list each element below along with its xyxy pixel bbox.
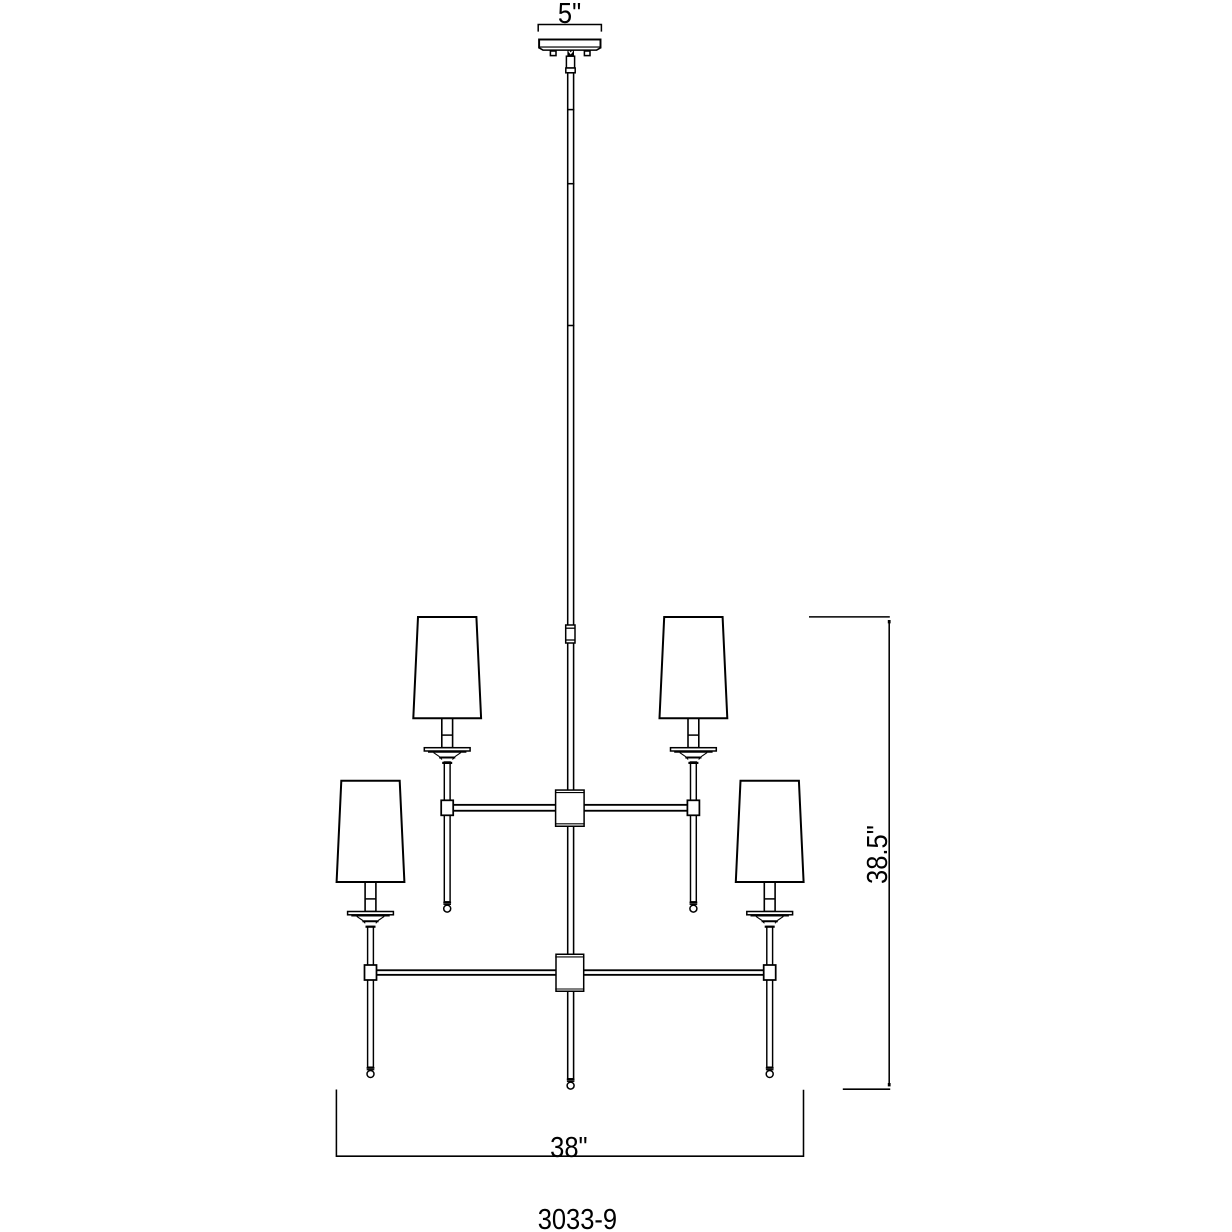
svg-text:3033-9: 3033-9 [538,1202,617,1232]
svg-text:38.5": 38.5" [861,825,894,884]
svg-text:38": 38" [550,1130,587,1163]
